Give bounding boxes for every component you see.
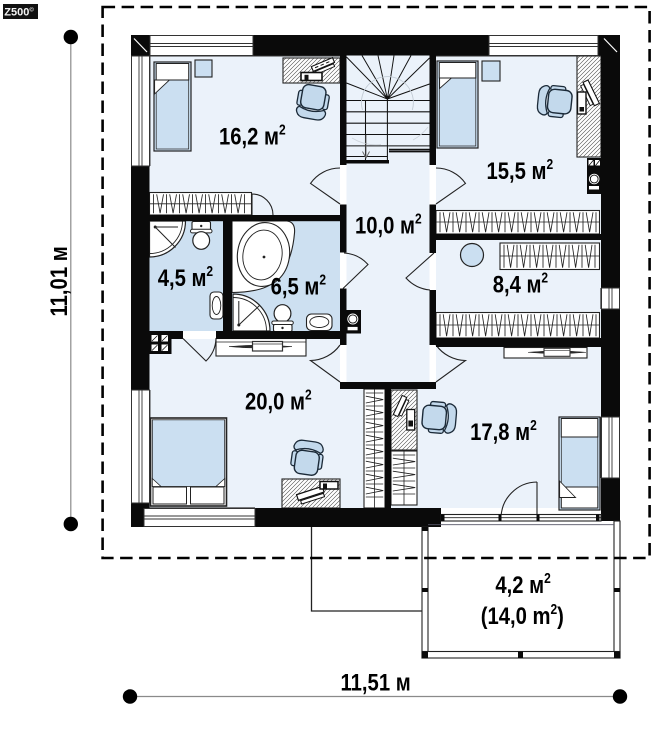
svg-text:16,2 м2: 16,2 м2 [219, 121, 286, 149]
svg-text:4,2 м2: 4,2 м2 [495, 570, 550, 598]
svg-text:6,5 м2: 6,5 м2 [271, 271, 326, 299]
svg-text:17,8 м2: 17,8 м2 [470, 417, 537, 445]
svg-text:10,0 м2: 10,0 м2 [355, 211, 422, 239]
svg-text:8,4 м2: 8,4 м2 [493, 270, 548, 298]
svg-text:11,01 м: 11,01 м [45, 246, 72, 316]
svg-text:11,51 м: 11,51 м [341, 669, 411, 696]
svg-text:4,5 м2: 4,5 м2 [158, 263, 213, 291]
svg-text:15,5 м2: 15,5 м2 [486, 156, 553, 184]
svg-text:20,0 м2: 20,0 м2 [245, 387, 312, 415]
